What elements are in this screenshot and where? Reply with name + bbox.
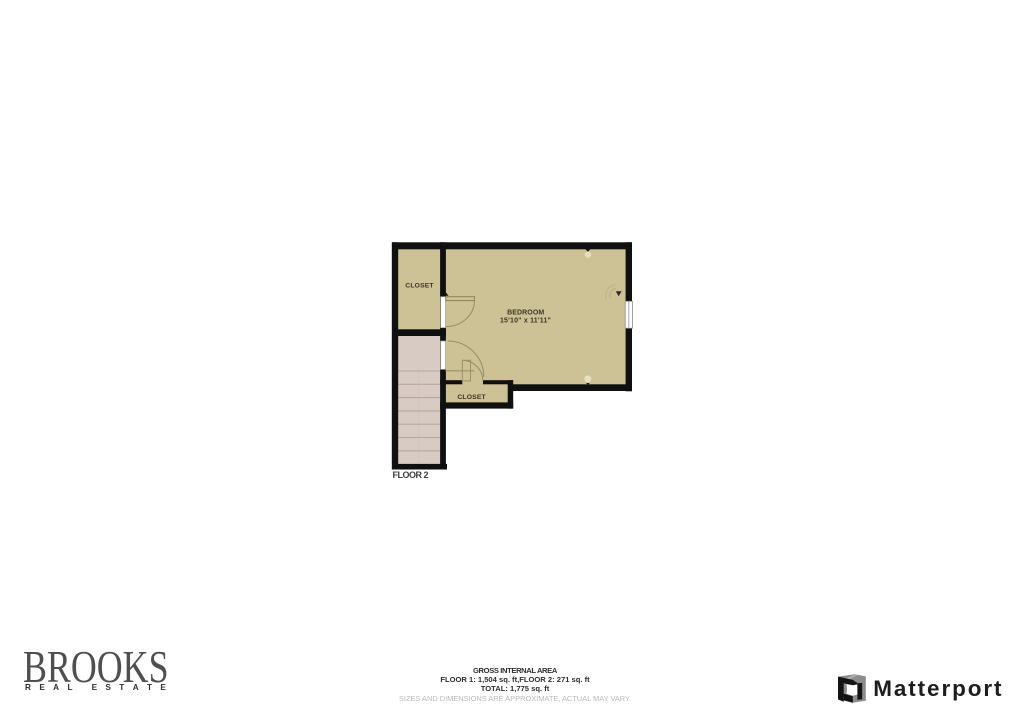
svg-text:BEDROOM: BEDROOM (507, 309, 544, 316)
svg-text:CLOSET: CLOSET (405, 283, 434, 290)
svg-text:FLOOR 2: FLOOR 2 (393, 470, 429, 480)
svg-text:15'10" x 11'11": 15'10" x 11'11" (500, 317, 551, 324)
svg-text:CLOSET: CLOSET (457, 394, 486, 401)
